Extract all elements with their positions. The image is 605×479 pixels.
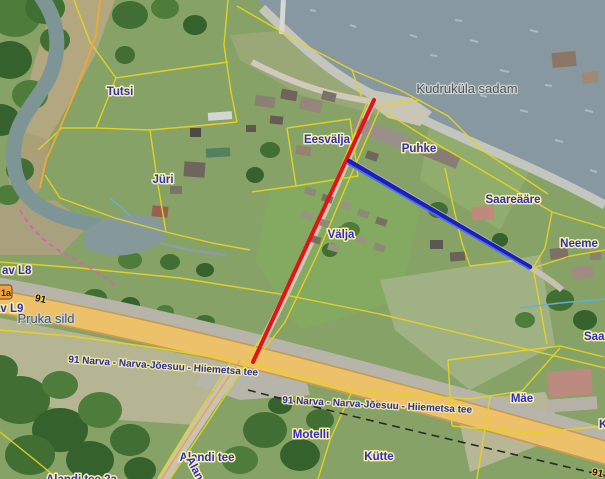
area-label: Pruka sild	[17, 311, 74, 326]
place-label: Kütte	[364, 451, 393, 463]
place-label: Neeme	[560, 238, 598, 250]
road-shield: 1a	[0, 285, 12, 299]
place-label: Eesvälja	[304, 134, 351, 146]
area-label: Kudruküla sadam	[416, 81, 517, 96]
place-label: Motelli	[293, 429, 329, 441]
place-label: Mäe	[511, 393, 533, 405]
map-viewport[interactable]: 1a TutsiJüriEesväljaPuhkeVäljaSaareääreN…	[0, 0, 605, 479]
place-label: Tutsi	[107, 86, 134, 98]
place-label: Puhke	[402, 143, 437, 155]
map-canvas[interactable]: 1a TutsiJüriEesväljaPuhkeVäljaSaareääreN…	[0, 0, 605, 479]
place-label: Saareääre	[486, 194, 541, 206]
place-label: Saare	[584, 331, 605, 343]
place-label: Jüri	[152, 174, 173, 186]
place-label: av L8	[2, 265, 32, 277]
place-label: Alandi tee 2a	[46, 474, 118, 479]
place-label: Kü	[599, 419, 605, 431]
road-shield-label: 1a	[1, 288, 12, 298]
place-label: Välja	[328, 229, 355, 241]
